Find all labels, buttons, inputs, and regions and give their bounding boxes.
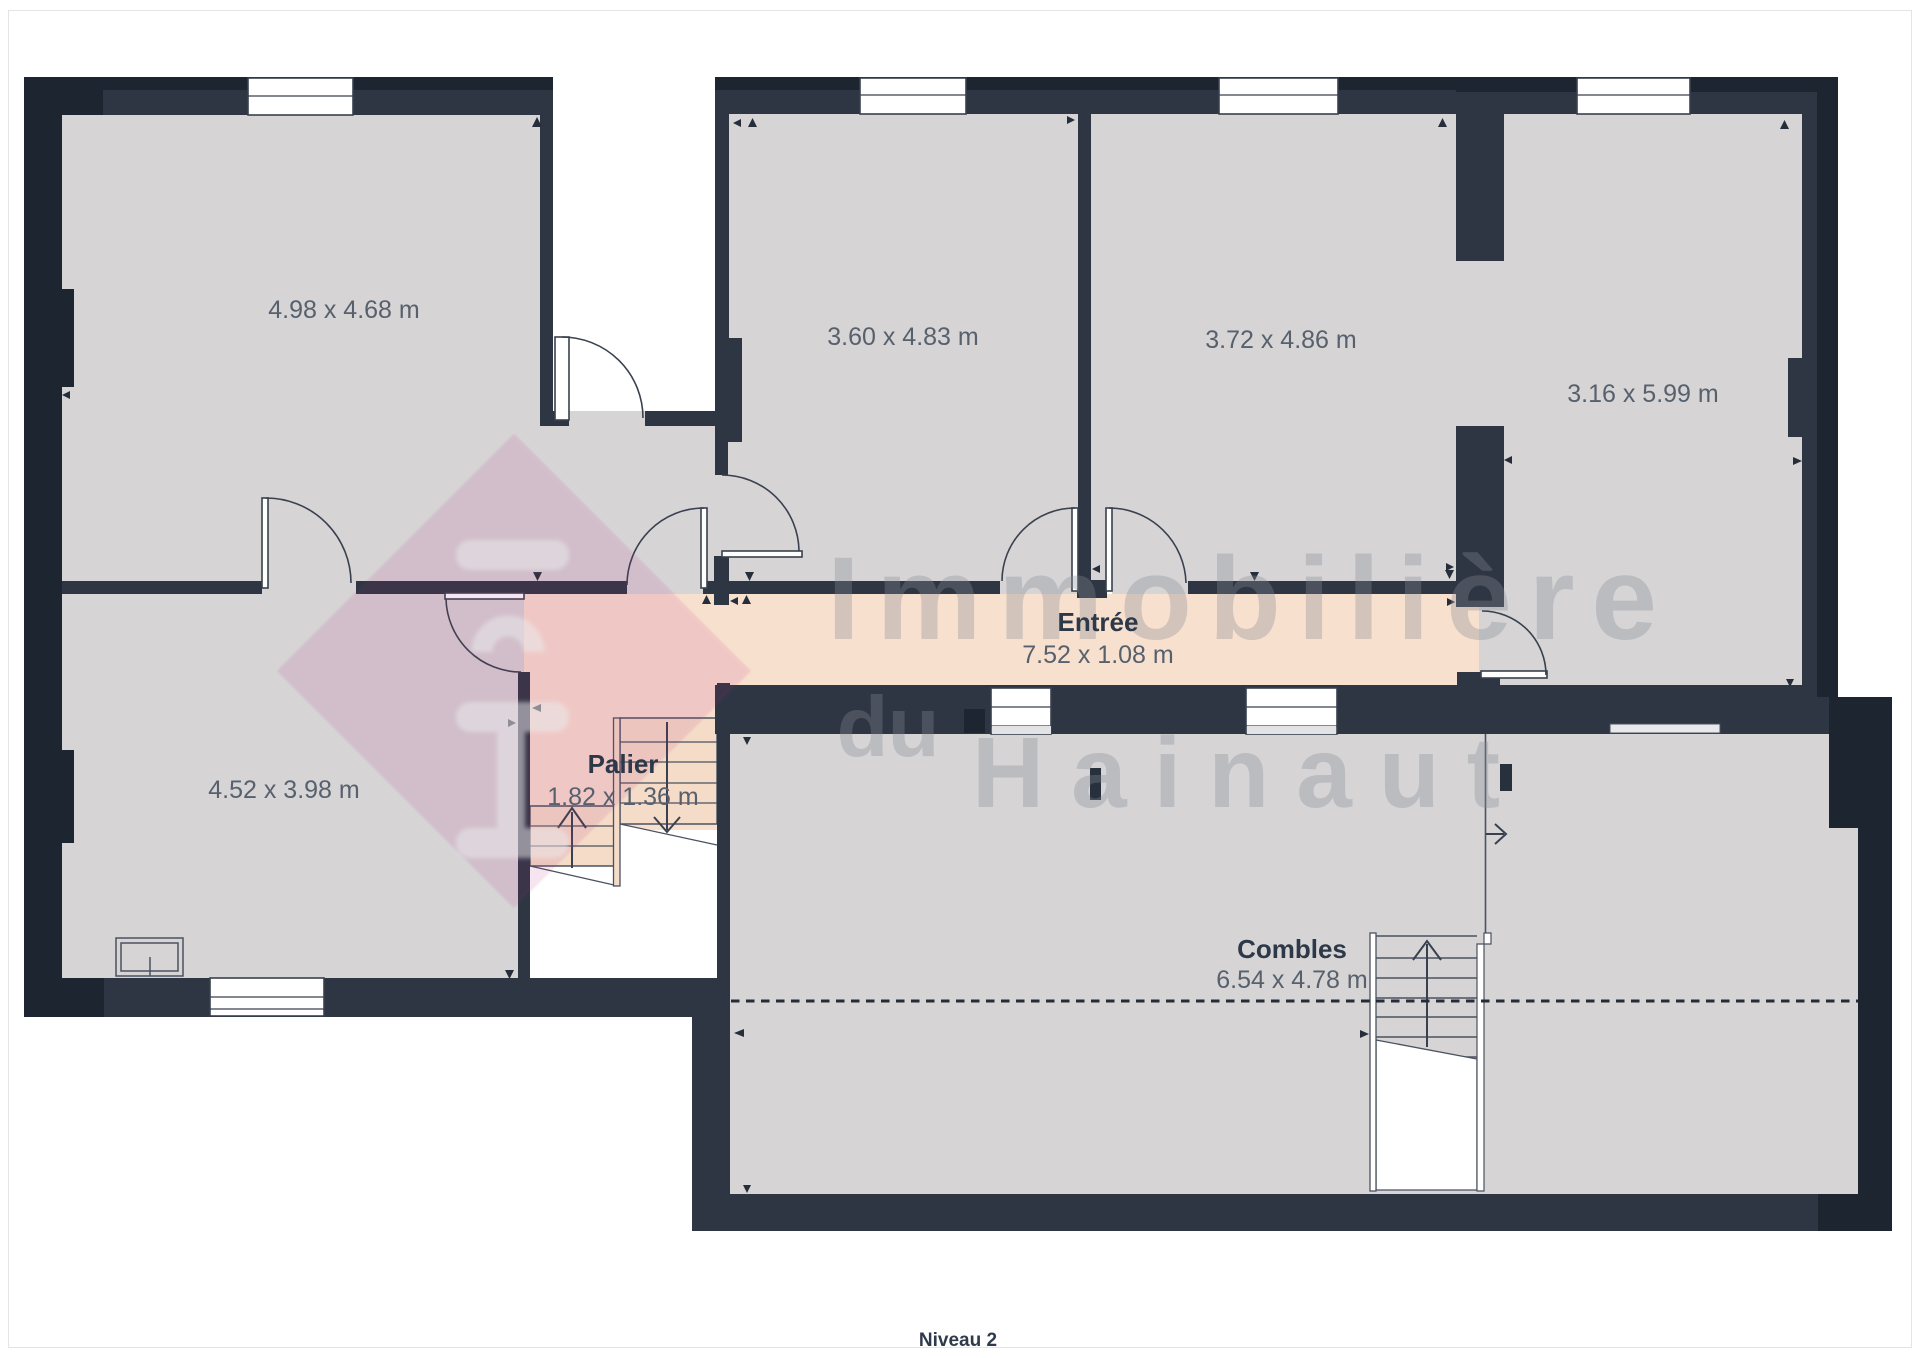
svg-text:3.72 x 4.86 m: 3.72 x 4.86 m <box>1205 326 1356 354</box>
svg-text:Combles: Combles <box>1237 934 1347 964</box>
svg-text:du: du <box>837 680 940 775</box>
svg-text:7.52 x 1.08 m: 7.52 x 1.08 m <box>1022 641 1173 669</box>
svg-text:6.54 x 4.78 m: 6.54 x 4.78 m <box>1216 966 1367 994</box>
svg-text:3.60 x 4.83 m: 3.60 x 4.83 m <box>827 323 978 351</box>
svg-text:4.52 x 3.98 m: 4.52 x 3.98 m <box>208 776 359 804</box>
svg-text:Entrée: Entrée <box>1058 607 1139 637</box>
svg-text:Immobilière: Immobilière <box>827 533 1657 665</box>
svg-text:1.82 x 1.36 m: 1.82 x 1.36 m <box>547 783 698 811</box>
svg-text:Palier: Palier <box>588 749 659 779</box>
svg-text:Niveau 2: Niveau 2 <box>919 1330 997 1351</box>
svg-text:4.98 x 4.68 m: 4.98 x 4.68 m <box>268 296 419 324</box>
svg-text:3.16 x 5.99 m: 3.16 x 5.99 m <box>1567 380 1718 408</box>
